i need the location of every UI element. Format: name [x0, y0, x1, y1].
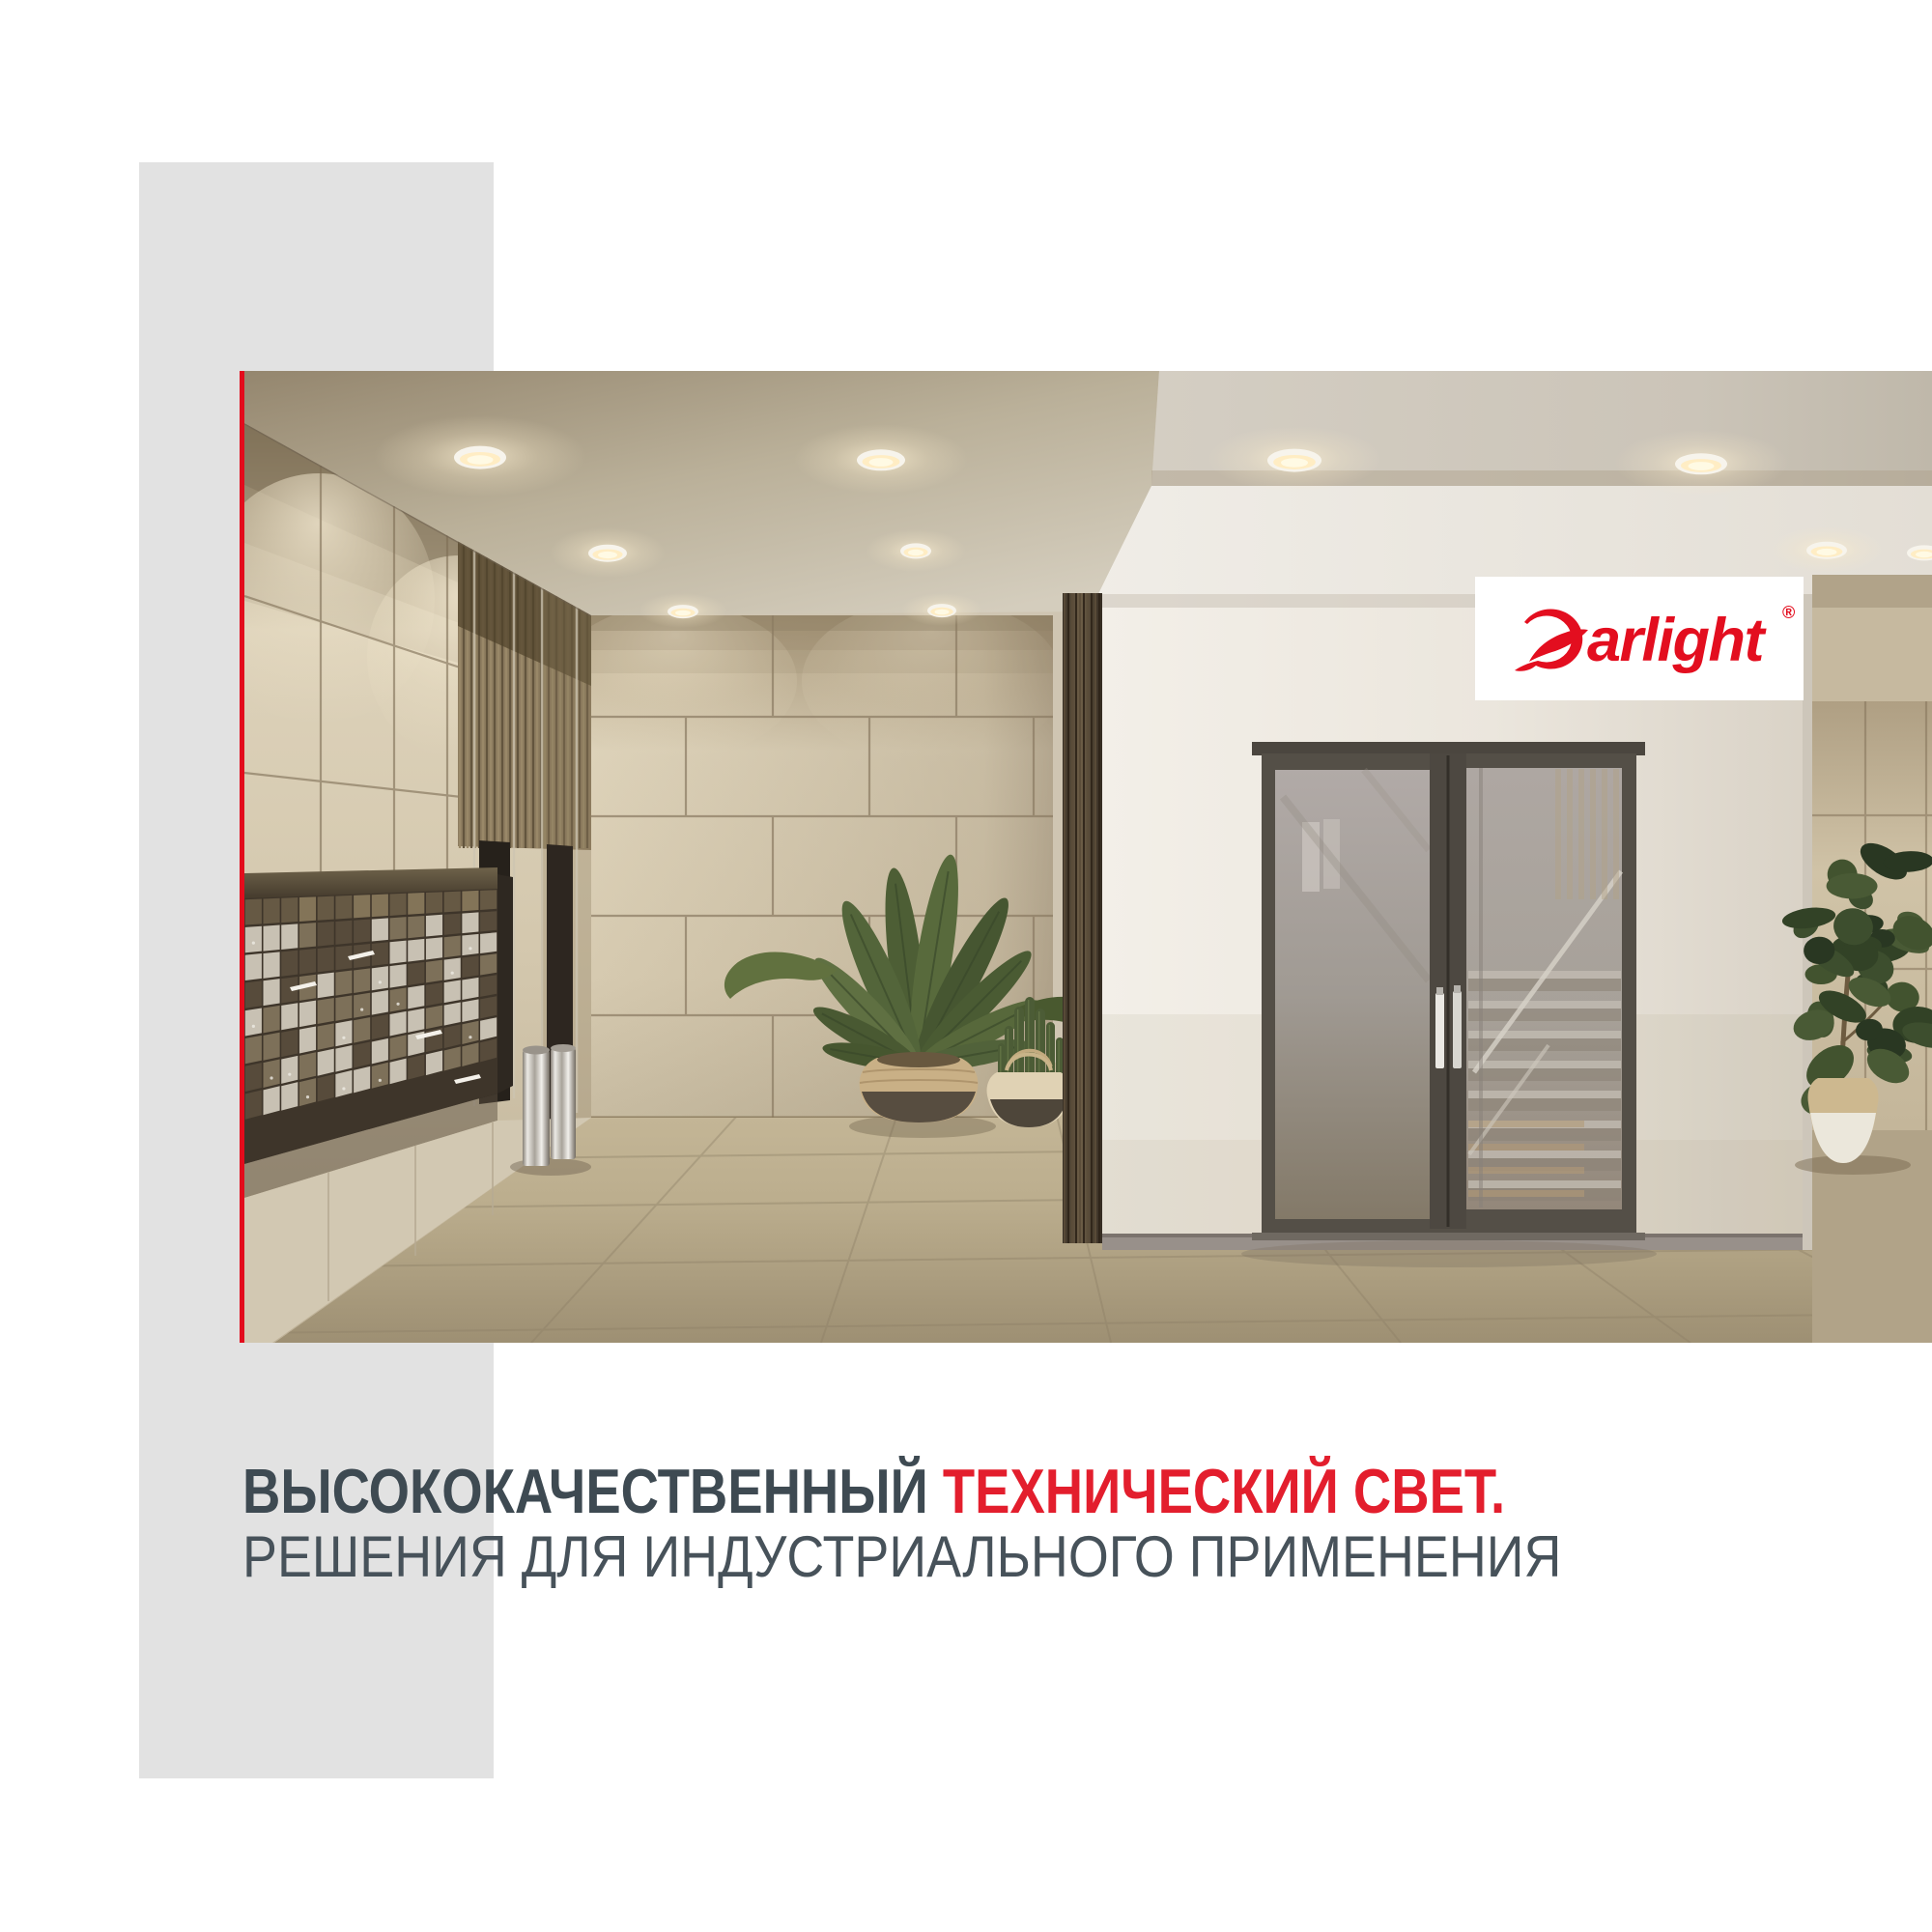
svg-text:®: ® [1782, 603, 1795, 622]
svg-text:arlight: arlight [1587, 607, 1768, 674]
